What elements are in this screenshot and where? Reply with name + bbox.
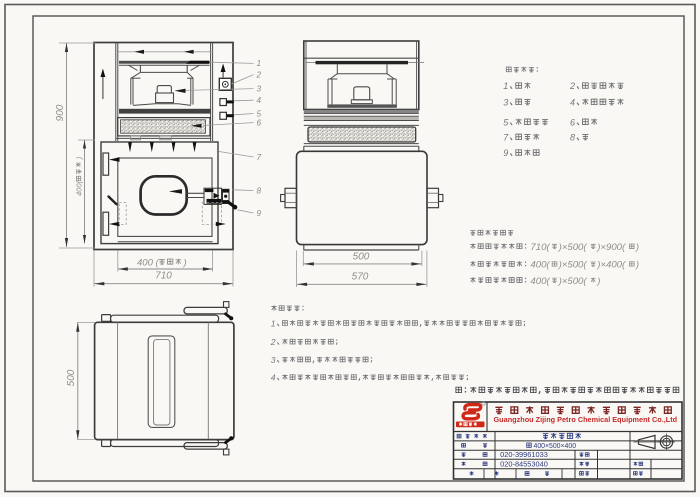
svg-text:400(: 400( [530,276,550,287]
svg-text:9: 9 [503,148,508,158]
svg-text:)×400(: )×400( [596,260,626,271]
svg-text:020-39961033: 020-39961033 [500,450,548,459]
svg-text:020-84553040: 020-84553040 [500,459,548,468]
svg-text:): ) [596,276,600,287]
svg-text:500: 500 [66,369,77,386]
svg-text:): ) [182,257,186,268]
svg-text:900: 900 [55,104,66,121]
svg-text:710: 710 [155,270,172,281]
svg-text:5: 5 [257,109,262,118]
svg-text:6: 6 [570,117,575,127]
svg-text:2: 2 [270,337,276,347]
svg-text:6: 6 [257,118,262,127]
svg-text:3: 3 [271,355,276,365]
svg-text:9: 9 [257,209,262,218]
svg-text:1: 1 [257,59,262,68]
svg-text:4: 4 [257,96,262,105]
svg-text:): ) [635,242,639,253]
svg-text:2: 2 [256,70,262,79]
svg-text:8: 8 [257,186,262,195]
svg-text:)×500(: )×500( [558,276,588,287]
svg-text:500: 500 [353,252,370,263]
svg-text:Guangzhou Zijing Petro Chemica: Guangzhou Zijing Petro Chemical Equipmen… [494,415,678,424]
svg-text:)×500(: )×500( [558,242,588,253]
svg-text:4: 4 [271,373,276,383]
svg-text:)×500(: )×500( [558,260,588,271]
svg-text:2: 2 [569,81,575,91]
svg-text:4: 4 [570,98,575,108]
svg-text:7: 7 [257,153,262,162]
svg-text:400(: 400( [75,179,84,196]
svg-text:)×900(: )×900( [596,242,626,253]
svg-text:3: 3 [257,84,262,93]
svg-text:3: 3 [503,98,508,108]
svg-text:8: 8 [570,133,575,143]
svg-text:400×500×400: 400×500×400 [534,443,577,450]
svg-text:570: 570 [352,272,369,283]
svg-text:1: 1 [271,318,276,328]
svg-text:): ) [75,156,84,160]
svg-text:): ) [635,260,639,271]
svg-text:400 (: 400 ( [137,257,159,268]
svg-text:1: 1 [503,81,508,91]
svg-text:400(: 400( [530,260,550,271]
svg-text:710(: 710( [530,242,550,253]
